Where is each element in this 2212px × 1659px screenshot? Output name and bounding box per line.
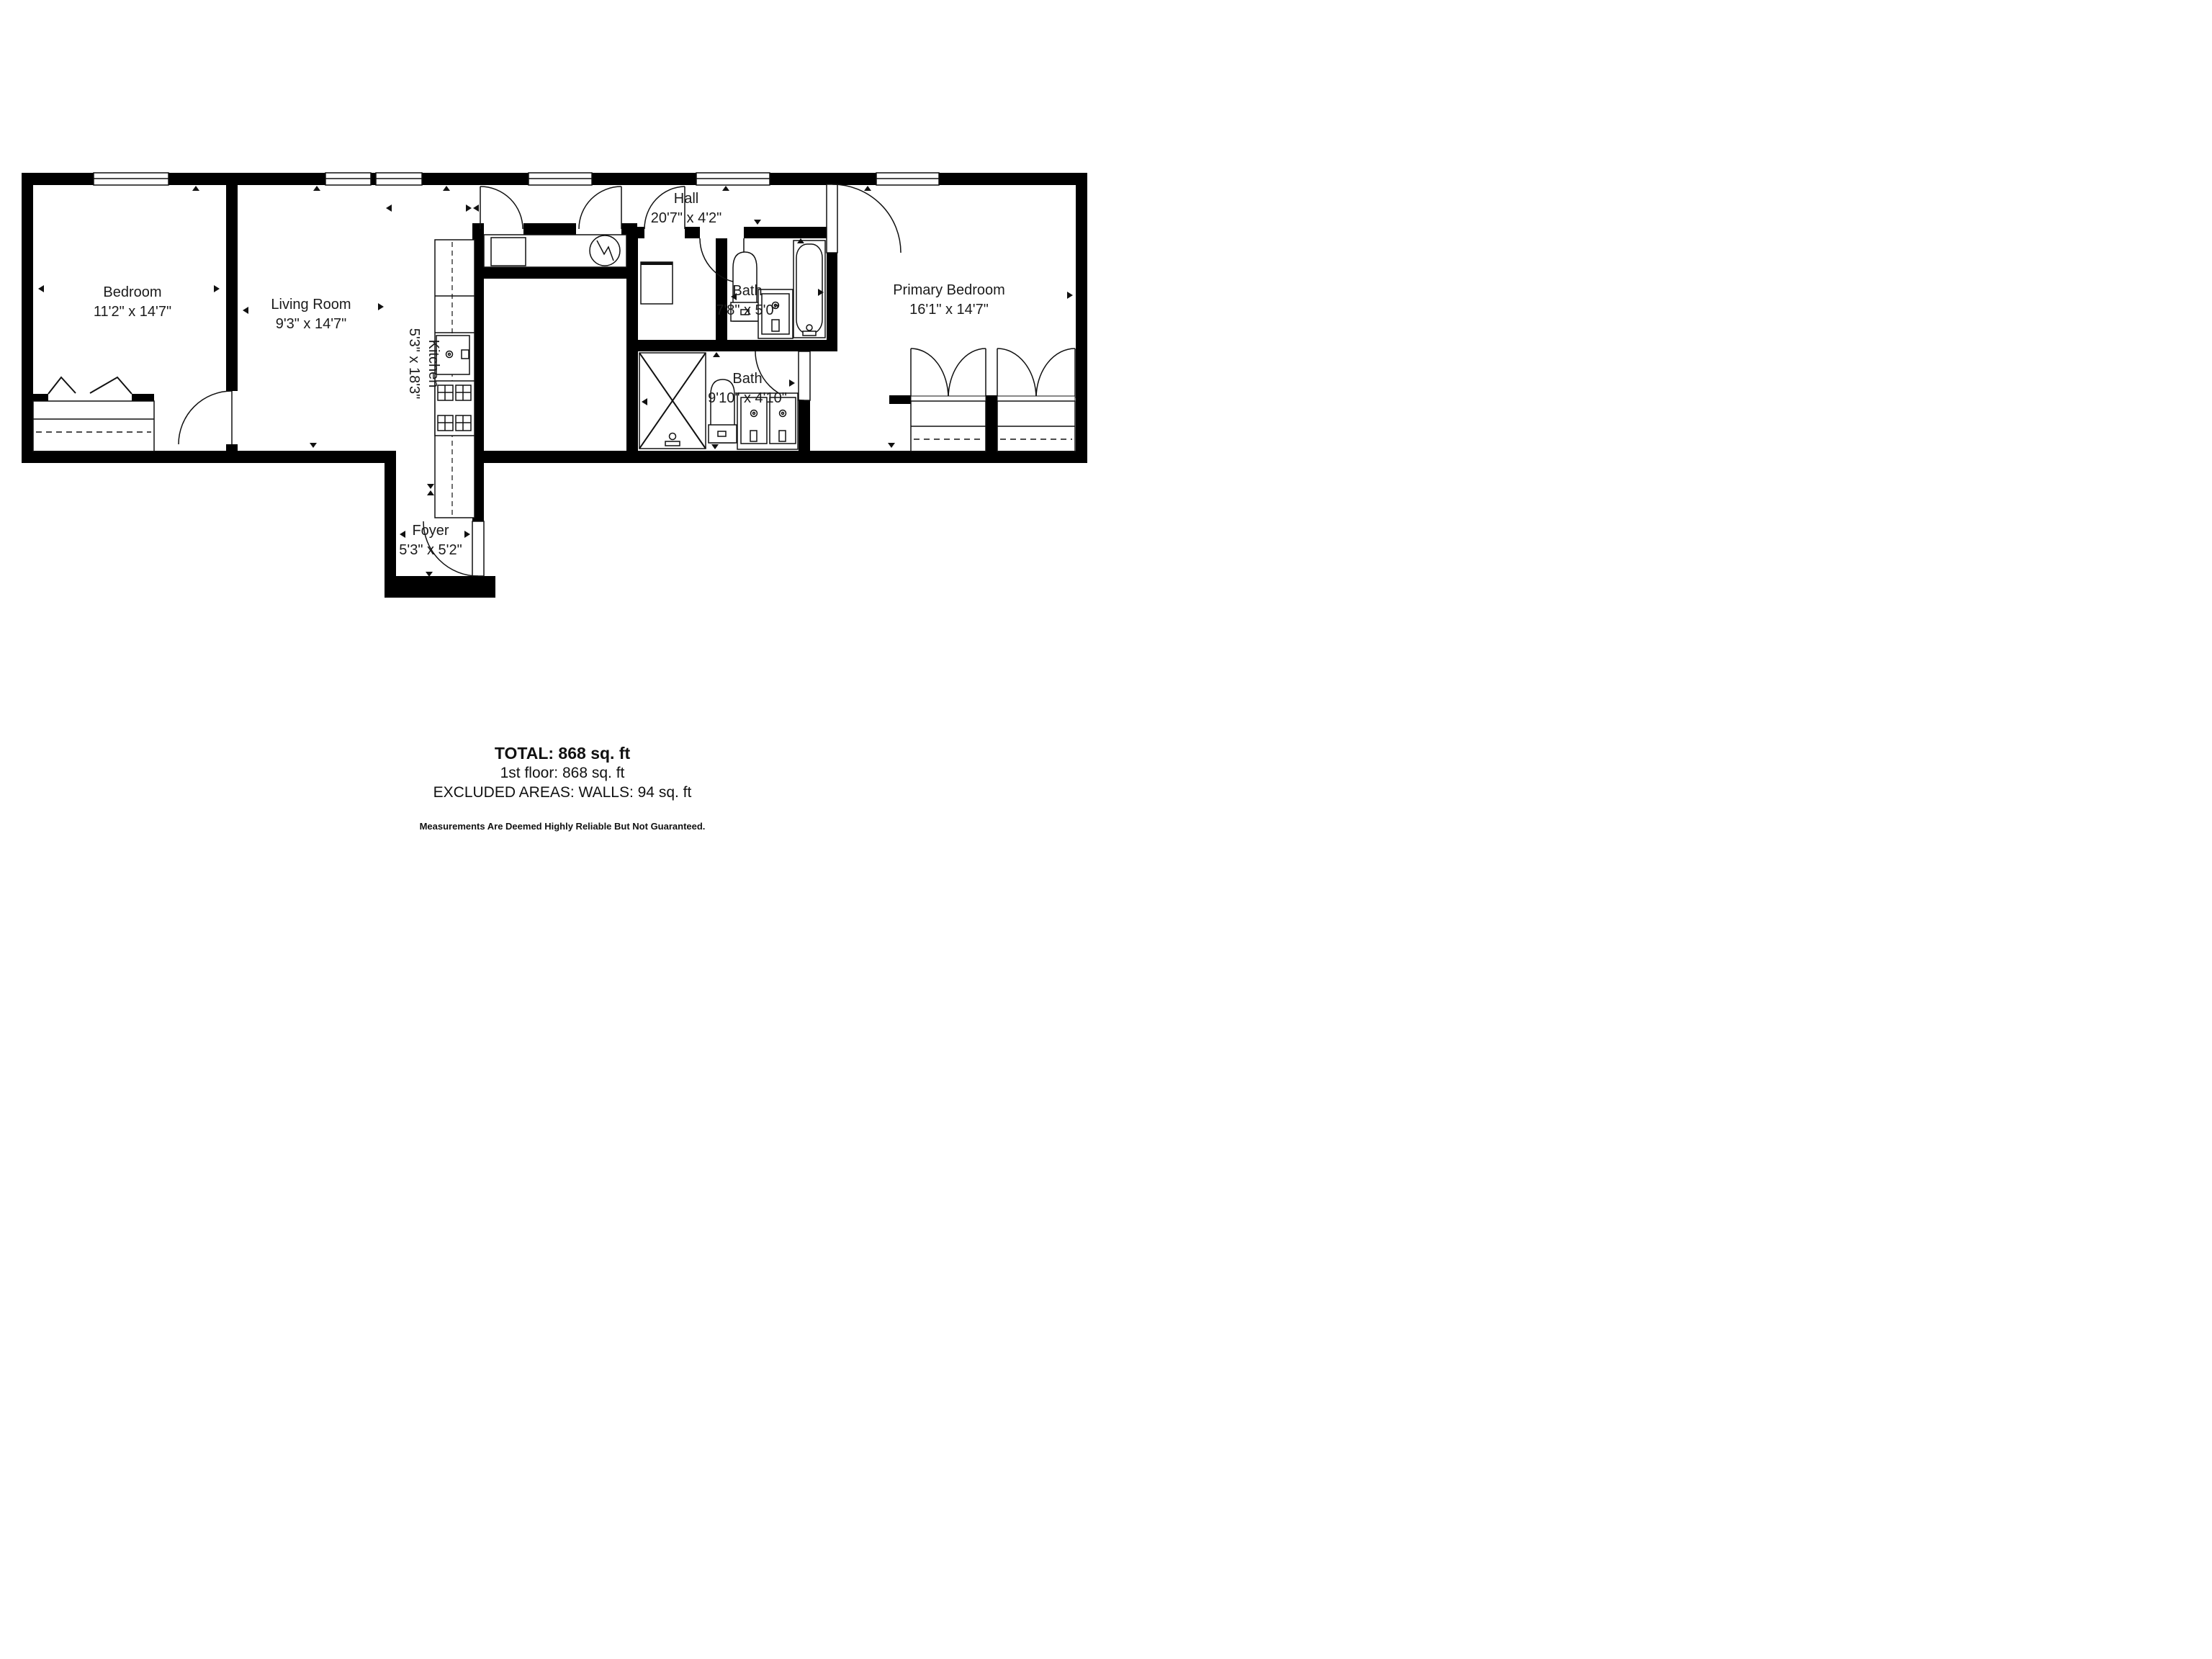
room-name: Kitchen [426,340,441,388]
room-name: Living Room [271,297,351,313]
window-living-1 [325,173,371,185]
door-hall-closet-1 [480,186,523,229]
excluded-area: EXCLUDED AREAS: WALLS: 94 sq. ft [19,783,1106,802]
wall-bath-lower-right [799,400,810,463]
room-dims: 11'2" x 14'7" [39,302,226,322]
window-bedroom [94,173,168,185]
room-label-bath-upper: Bath 7'8" x 5'0" [654,282,841,320]
room-label-hall: Hall 20'7" x 4'2" [593,189,780,228]
room-dims: 5'3" x 5'2" [337,541,524,560]
wall-bath-divider [626,340,837,351]
room-name: Foyer [412,523,449,539]
wall-foyer-bottom [385,576,495,598]
room-label-living-room: Living Room 9'3" x 14'7" [217,295,405,334]
bifold-door [90,377,132,394]
room-dims: 9'10" x 4'10" [654,389,841,408]
window-primary [876,173,939,185]
bifold-door [48,377,76,394]
closets [33,349,1075,451]
total-area: TOTAL: 868 sq. ft [19,743,1106,763]
room-name: Primary Bedroom [893,282,1005,298]
window-hall-2 [696,173,770,185]
floor1-area: 1st floor: 868 sq. ft [19,763,1106,783]
room-name: Hall [674,191,698,207]
primary-closet-1 [911,349,986,451]
room-label-bedroom: Bedroom 11'2" x 14'7" [39,283,226,322]
room-label-primary-bedroom: Primary Bedroom 16'1" x 14'7" [855,281,1043,320]
wall-right [1076,173,1087,463]
room-dims: 7'8" x 5'0" [654,301,841,320]
window-hall-1 [529,173,592,185]
closet-door-swing [997,349,1036,398]
room-name: Bedroom [103,284,161,300]
water-heater [590,235,620,266]
floor-plan-drawing [0,0,1106,829]
closet-door-swing [1036,349,1075,398]
closet-door-swing [911,349,948,398]
wall-central-right [626,227,638,451]
disclaimer: Measurements Are Deemed Highly Reliable … [19,821,1106,832]
room-dims: 5'3" x 18'3" [406,328,422,400]
wall-appliance-bottom [472,267,638,279]
room-label-bath-lower: Bath 9'10" x 4'10" [654,369,841,408]
wall-left [22,173,33,463]
room-label-foyer: Foyer 5'3" x 5'2" [337,521,524,560]
closet-door-swing [948,349,986,398]
bedroom-closet [33,377,154,451]
room-name: Bath [732,371,762,387]
primary-closet-2 [997,349,1075,451]
wall-bedroom-divider [226,185,238,391]
room-dims: 16'1" x 14'7" [855,300,1043,320]
summary-block: TOTAL: 868 sq. ft 1st floor: 868 sq. ft … [0,743,1106,832]
window-living-2 [376,173,422,185]
appliance-row [484,235,626,267]
room-dims: 9'3" x 14'7" [217,315,405,334]
room-dims: 20'7" x 4'2" [593,209,780,228]
door-primary [827,184,901,253]
wall-bedroom-divider-stub [226,444,238,451]
room-name: Bath [732,283,762,299]
floor-plan-page: { "rooms": [ {"id": "bedroom", "name": "… [0,0,1106,829]
wall-bottom-left [22,451,396,463]
door-bedroom [179,391,232,444]
